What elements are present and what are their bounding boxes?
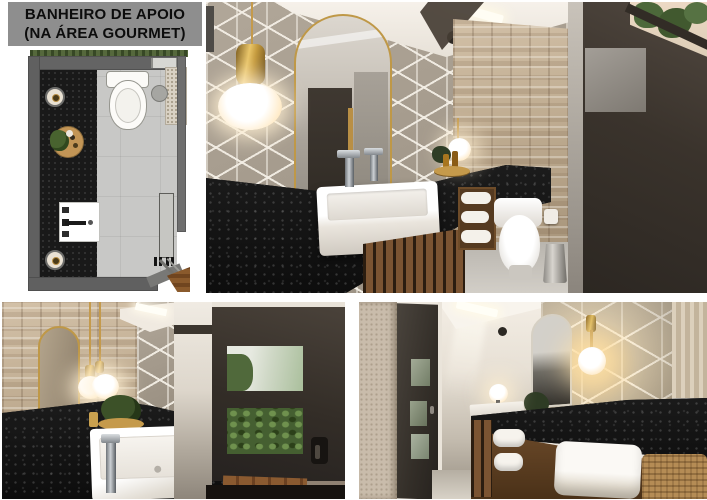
plan-faucet-spout (65, 221, 86, 225)
pendant-globe-light (218, 83, 282, 130)
wall-rail (174, 325, 212, 334)
plan-faucet-part (62, 231, 69, 237)
towel (461, 211, 489, 223)
towel (461, 230, 491, 243)
door-handle (311, 437, 328, 464)
door-glass-panel (585, 48, 646, 112)
bathroom-floor (432, 470, 471, 499)
plan-pendant-center-dot (52, 257, 60, 265)
plan-wall-niche (151, 58, 178, 68)
plan-pendant-light-symbol (45, 87, 65, 107)
faucet-spout (337, 150, 360, 158)
faucet-stem (370, 151, 378, 181)
glass-greenery (227, 354, 253, 391)
sink-basin (327, 188, 428, 220)
wall-edge-sliver (206, 6, 214, 52)
towel-shelf (458, 187, 496, 250)
plan-sink (60, 203, 99, 241)
pendant-cord (251, 2, 253, 46)
door-glass-pane (410, 401, 427, 426)
presentation-board: BANHEIRO DE APOIO (NA ÁREA GOURMET) (0, 0, 707, 500)
plan-toilet-seat (115, 88, 141, 123)
plan-decor-tray (53, 127, 83, 157)
plan-wall-left (28, 56, 40, 291)
mirror-light-streak (294, 26, 392, 51)
ceiling-spotlight (498, 327, 507, 336)
plan-decor-dot (73, 143, 78, 148)
pendant-cord (89, 302, 91, 368)
door-knob (430, 406, 434, 414)
door-glass-upper (227, 346, 303, 391)
faucet-spout (364, 148, 383, 155)
plan-pendant-center-dot (52, 94, 60, 102)
toilet-base (509, 265, 532, 280)
render-sink-door-view (2, 302, 345, 499)
pendant-brass-shade (95, 361, 104, 373)
faucet-spout (101, 434, 120, 443)
folded-towel (554, 441, 643, 499)
plan-door-leaf (160, 194, 173, 257)
plan-pendant-light-symbol (45, 250, 65, 270)
plan-toilet-bowl (109, 80, 147, 130)
pendant-brass-shade (236, 44, 265, 85)
plan-decor-dish (66, 130, 73, 137)
wicker-basket (642, 454, 707, 499)
towel (494, 453, 523, 471)
faucet-stem (345, 153, 354, 187)
pendant-cord (99, 302, 101, 363)
trash-bin (543, 244, 567, 283)
curtain-panel (672, 302, 707, 398)
plan-drain (88, 220, 93, 225)
plan-wall-bottom (28, 277, 158, 291)
plant-foliage (684, 2, 707, 24)
towel (493, 429, 525, 447)
decor-bottle (89, 412, 98, 427)
door-glass-lower (227, 408, 303, 454)
decor-gold-tray (434, 166, 470, 176)
towel (461, 192, 491, 204)
faucet-stem (106, 441, 116, 493)
plan-faucet-part (62, 207, 69, 213)
wall-sconce-globe (578, 347, 606, 375)
door-glass-pane (411, 359, 430, 386)
render-corridor-vanity-view (359, 302, 707, 499)
plan-wall-right (177, 56, 186, 232)
render-vanity-perspective (206, 2, 707, 293)
toilet-paper-holder (544, 209, 558, 224)
wood-slat-panel (471, 420, 492, 497)
door-glass-pane (411, 434, 429, 459)
plan-trash-bin (151, 85, 168, 102)
door-handle-lever (315, 445, 320, 459)
floor-shadow (206, 485, 345, 499)
textured-side-wall (359, 302, 397, 499)
